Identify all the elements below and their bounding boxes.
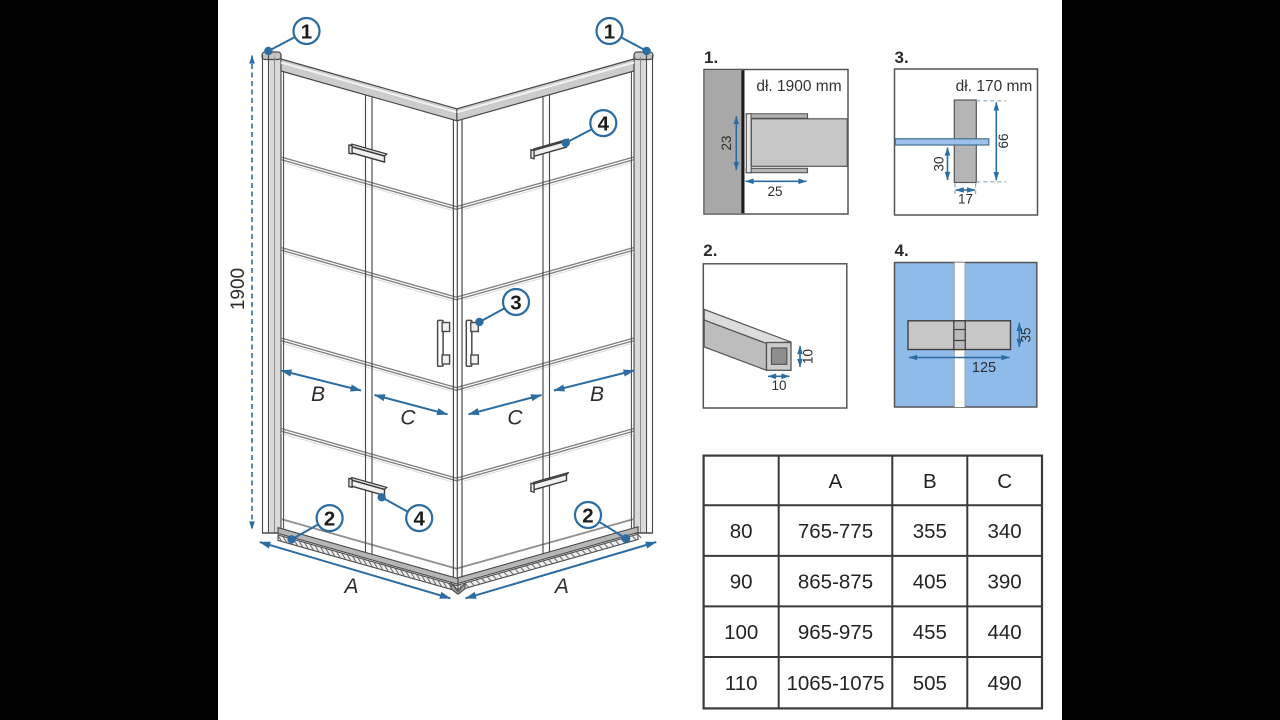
svg-text:2: 2 (324, 508, 335, 531)
svg-text:965-975: 965-975 (798, 621, 873, 644)
svg-text:B: B (923, 470, 937, 493)
svg-text:2: 2 (582, 504, 593, 527)
svg-text:10: 10 (801, 349, 816, 364)
svg-text:10: 10 (771, 378, 786, 393)
svg-text:405: 405 (913, 570, 947, 593)
svg-text:1.: 1. (704, 48, 718, 67)
svg-text:110: 110 (725, 672, 758, 695)
svg-text:865-875: 865-875 (798, 570, 873, 593)
svg-text:4: 4 (413, 508, 425, 531)
svg-text:4.: 4. (895, 241, 909, 260)
svg-text:dł. 1900 mm: dł. 1900 mm (756, 78, 841, 95)
svg-text:A: A (829, 470, 843, 493)
svg-text:dł. 170 mm: dł. 170 mm (956, 78, 1033, 95)
svg-text:A: A (342, 575, 358, 598)
svg-text:1: 1 (301, 20, 312, 43)
svg-text:C: C (507, 407, 523, 430)
svg-text:35: 35 (1019, 327, 1034, 342)
svg-text:390: 390 (987, 570, 1021, 593)
svg-text:490: 490 (987, 672, 1021, 695)
svg-text:1900: 1900 (228, 268, 249, 310)
svg-text:3: 3 (510, 291, 521, 314)
svg-text:2.: 2. (703, 241, 717, 260)
svg-text:90: 90 (730, 570, 753, 593)
svg-text:30: 30 (931, 156, 946, 171)
svg-text:A: A (553, 575, 569, 598)
svg-text:505: 505 (913, 672, 947, 695)
svg-text:1065-1075: 1065-1075 (786, 672, 884, 695)
svg-text:23: 23 (719, 135, 734, 150)
svg-text:B: B (311, 383, 325, 406)
svg-text:25: 25 (767, 184, 782, 199)
svg-text:80: 80 (730, 520, 753, 543)
svg-text:C: C (400, 407, 416, 430)
svg-text:125: 125 (972, 360, 996, 376)
svg-text:4: 4 (598, 113, 610, 136)
svg-text:3.: 3. (895, 48, 909, 67)
svg-text:17: 17 (958, 192, 973, 207)
svg-text:B: B (590, 383, 604, 406)
svg-text:765-775: 765-775 (798, 520, 873, 543)
svg-text:C: C (997, 470, 1012, 493)
svg-text:66: 66 (996, 133, 1011, 148)
svg-text:355: 355 (913, 520, 947, 543)
svg-text:1: 1 (604, 20, 615, 43)
svg-text:455: 455 (913, 621, 947, 644)
svg-text:100: 100 (724, 621, 758, 644)
svg-text:340: 340 (987, 520, 1021, 543)
svg-text:440: 440 (987, 621, 1021, 644)
